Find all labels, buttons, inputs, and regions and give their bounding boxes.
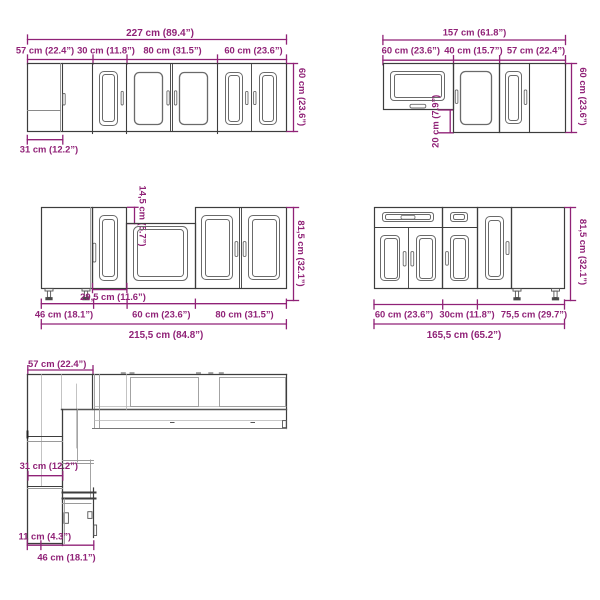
- svg-text:60 cm (23.6”): 60 cm (23.6”): [382, 45, 440, 56]
- svg-text:227 cm (89.4”): 227 cm (89.4”): [126, 28, 194, 39]
- svg-text:60 cm (23.6”): 60 cm (23.6”): [297, 68, 308, 126]
- svg-text:75,5 cm (29.7”): 75,5 cm (29.7”): [501, 309, 567, 320]
- svg-text:30 cm (11.8”): 30 cm (11.8”): [77, 45, 135, 56]
- svg-text:29,5 cm (11.6”): 29,5 cm (11.6”): [80, 291, 146, 302]
- svg-text:57 cm (22.4”): 57 cm (22.4”): [16, 45, 74, 56]
- svg-text:215,5 cm (84.8”): 215,5 cm (84.8”): [129, 330, 204, 341]
- svg-text:11 cm (4.3”): 11 cm (4.3”): [19, 531, 72, 542]
- svg-text:60 cm (23.6”): 60 cm (23.6”): [578, 67, 589, 125]
- svg-text:157 cm (61.8”): 157 cm (61.8”): [443, 27, 507, 38]
- svg-text:60 cm (23.6”): 60 cm (23.6”): [132, 309, 190, 320]
- svg-text:40 cm (15.7”): 40 cm (15.7”): [444, 45, 502, 56]
- svg-text:46 cm (18.1”): 46 cm (18.1”): [35, 309, 93, 320]
- svg-text:81,5 cm (32.1”): 81,5 cm (32.1”): [578, 219, 589, 285]
- svg-text:57 cm (22.4”): 57 cm (22.4”): [28, 358, 86, 369]
- svg-text:20 cm (7.9”): 20 cm (7.9”): [430, 95, 441, 148]
- svg-text:81,5 cm (32.1”): 81,5 cm (32.1”): [296, 220, 307, 286]
- svg-text:60 cm (23.6”): 60 cm (23.6”): [224, 45, 282, 56]
- svg-text:80 cm (31.5”): 80 cm (31.5”): [143, 45, 201, 56]
- svg-text:31 cm (12.2”): 31 cm (12.2”): [20, 143, 78, 154]
- svg-text:165,5 cm (65.2”): 165,5 cm (65.2”): [427, 330, 502, 341]
- svg-text:31 cm (12.2”): 31 cm (12.2”): [20, 460, 78, 471]
- svg-text:30cm (11.8”): 30cm (11.8”): [439, 309, 494, 320]
- svg-text:46 cm (18.1”): 46 cm (18.1”): [37, 552, 95, 563]
- svg-text:14,5 cm (5.7”): 14,5 cm (5.7”): [138, 186, 149, 247]
- svg-text:60 cm (23.6”): 60 cm (23.6”): [375, 309, 433, 320]
- svg-text:57 cm (22.4”): 57 cm (22.4”): [507, 45, 565, 56]
- svg-text:80 cm (31.5”): 80 cm (31.5”): [215, 309, 273, 320]
